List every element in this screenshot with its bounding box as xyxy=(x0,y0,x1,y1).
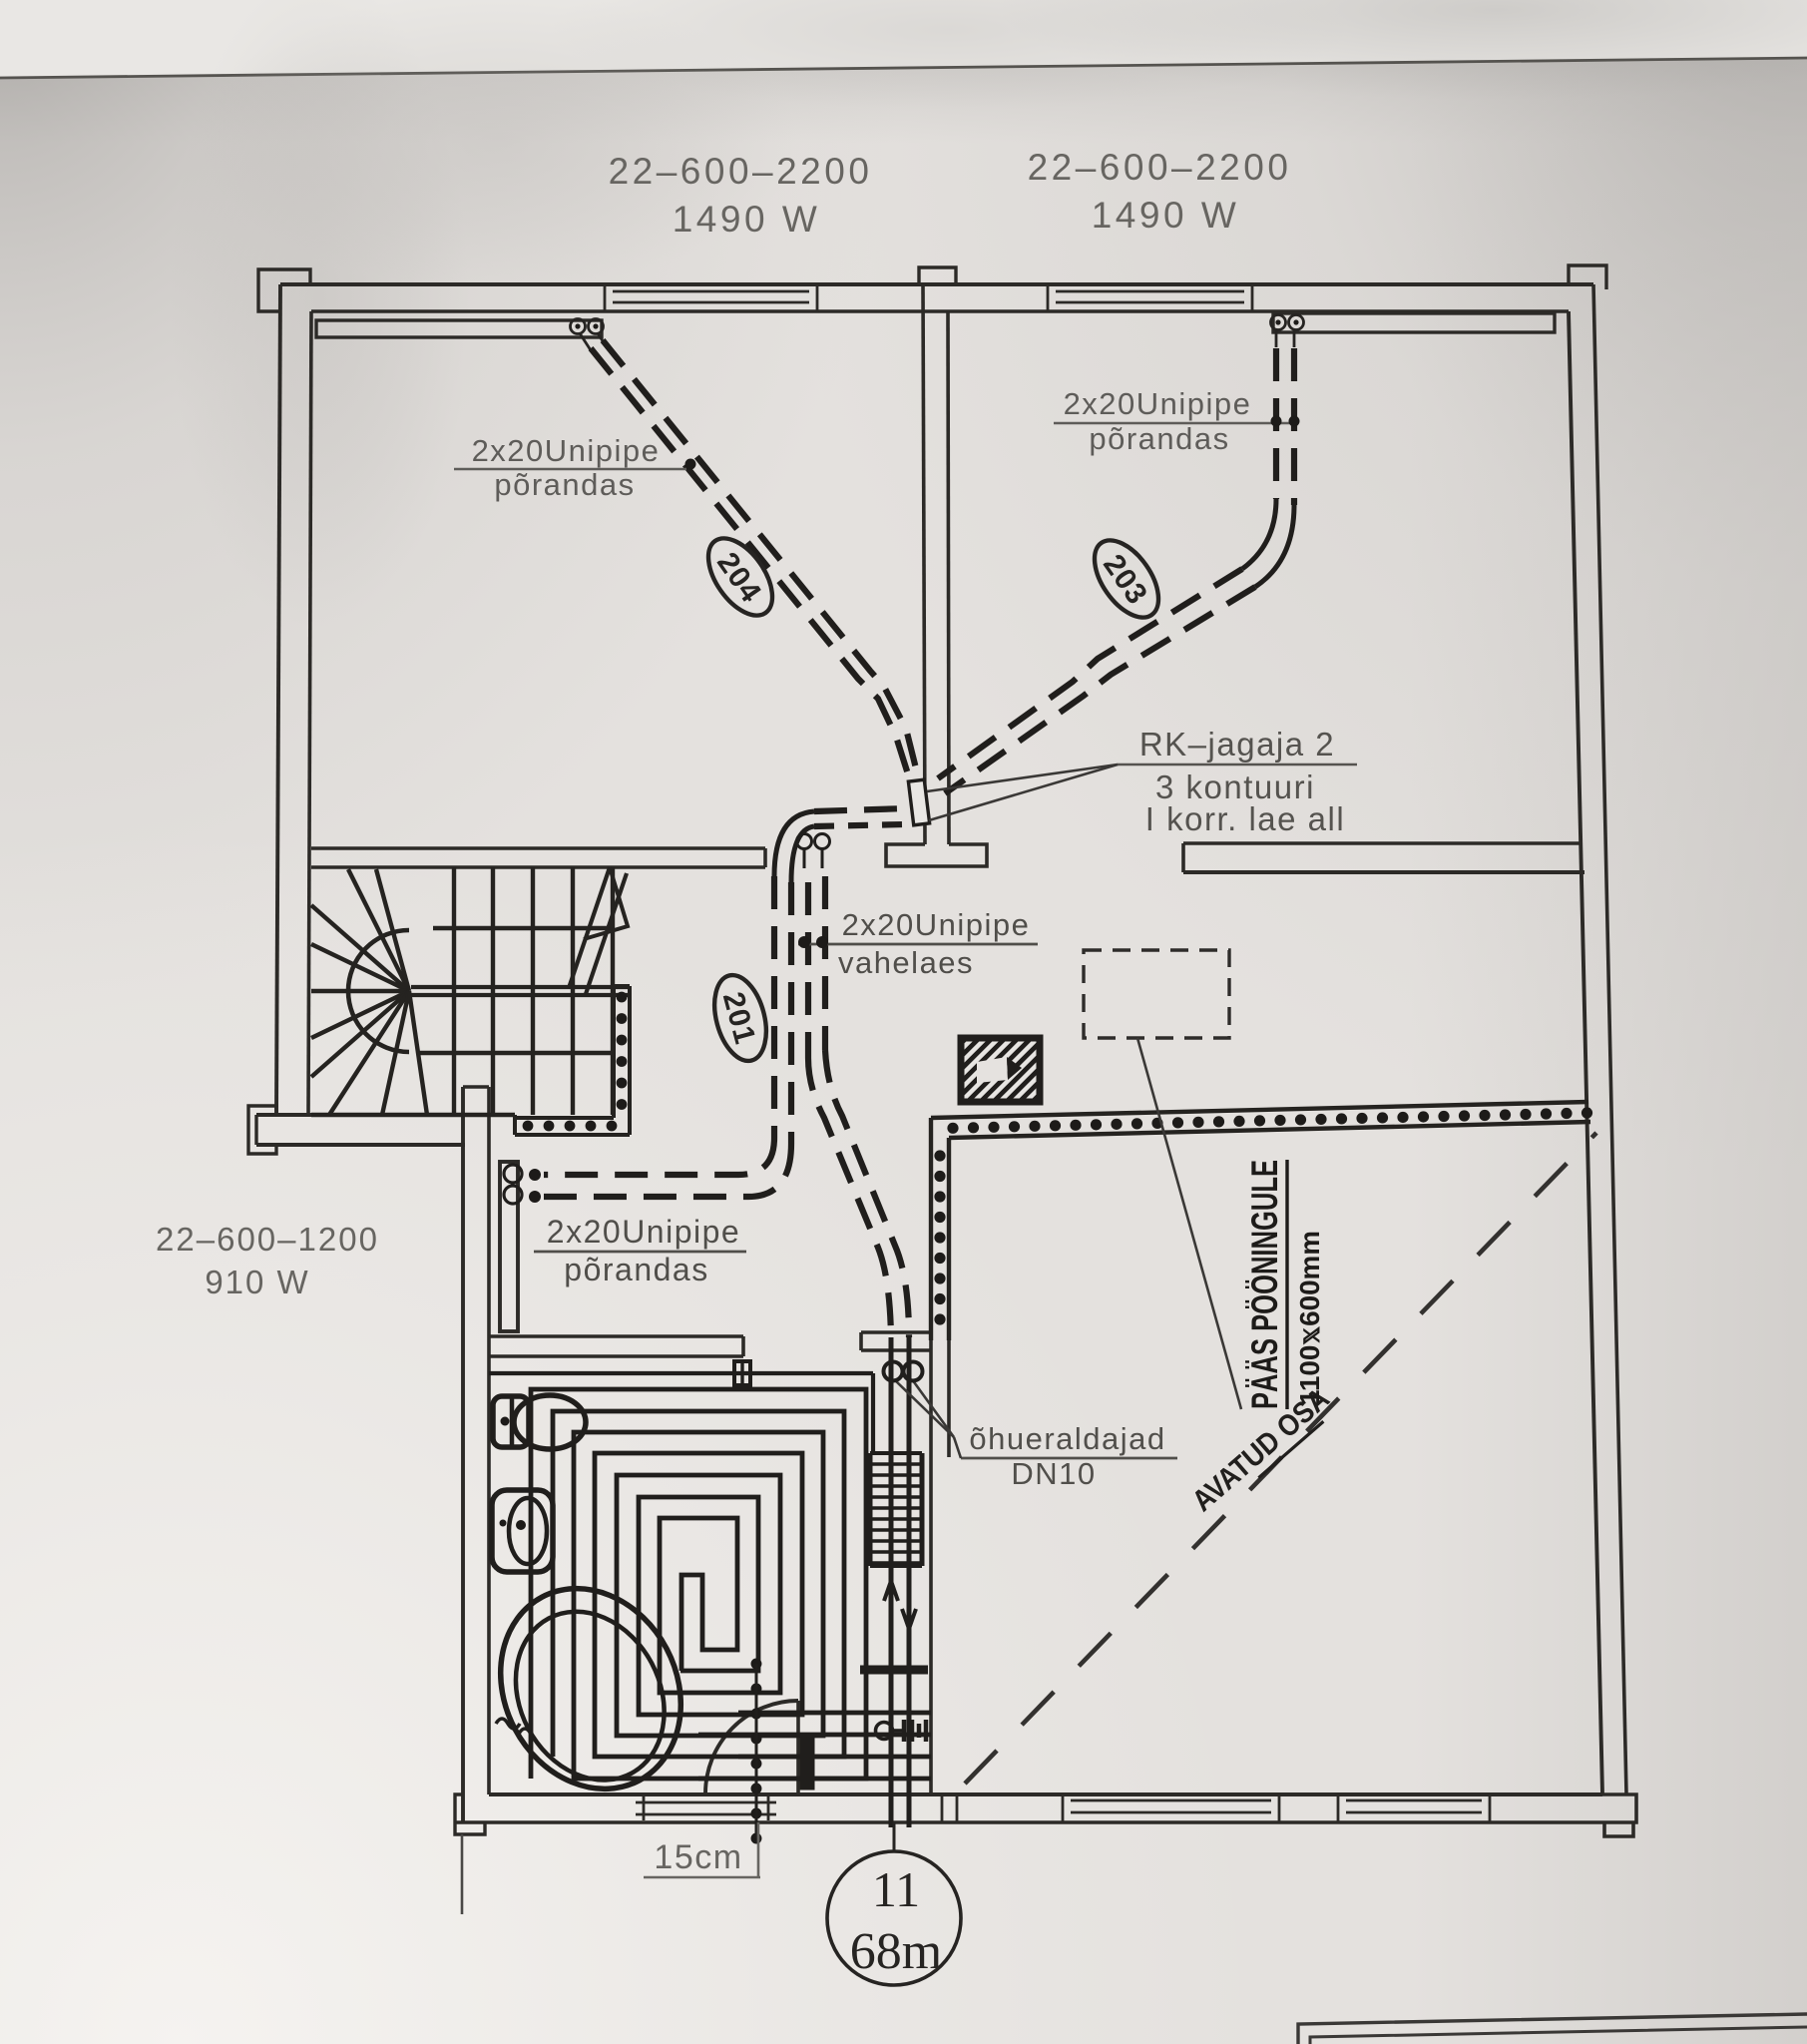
svg-text:I korr. lae all: I korr. lae all xyxy=(1145,800,1345,837)
svg-text:õhueraldajad: õhueraldajad xyxy=(969,1421,1165,1456)
svg-text:11: 11 xyxy=(872,1861,920,1917)
svg-text:2x20Unipipe: 2x20Unipipe xyxy=(547,1214,740,1250)
svg-text:RK–jagaja 2: RK–jagaja 2 xyxy=(1139,726,1335,763)
svg-text:910 W: 910 W xyxy=(205,1264,309,1300)
svg-text:põrandas: põrandas xyxy=(564,1252,708,1287)
svg-text:2x20Unipipe: 2x20Unipipe xyxy=(472,433,661,468)
svg-text:2x20Unipipe: 2x20Unipipe xyxy=(842,907,1031,942)
svg-text:1100𝕩600mm: 1100𝕩600mm xyxy=(1294,1231,1325,1405)
svg-text:68m: 68m xyxy=(850,1923,942,1980)
svg-text:põrandas: põrandas xyxy=(494,467,635,502)
svg-text:22–600–2200: 22–600–2200 xyxy=(609,151,873,192)
svg-text:DN10: DN10 xyxy=(1011,1456,1096,1491)
svg-text:PÄÄS PÖÖNINGULE: PÄÄS PÖÖNINGULE xyxy=(1244,1160,1285,1409)
svg-text:2x20Unipipe: 2x20Unipipe xyxy=(1064,386,1252,421)
svg-text:põrandas: põrandas xyxy=(1089,421,1229,456)
svg-text:1490 W: 1490 W xyxy=(1092,195,1240,236)
svg-text:22–600–1200: 22–600–1200 xyxy=(156,1221,379,1258)
svg-text:22–600–2200: 22–600–2200 xyxy=(1028,147,1292,188)
svg-text:1490 W: 1490 W xyxy=(673,199,821,240)
svg-text:vahelaes: vahelaes xyxy=(838,945,974,980)
svg-text:15cm: 15cm xyxy=(654,1838,742,1876)
